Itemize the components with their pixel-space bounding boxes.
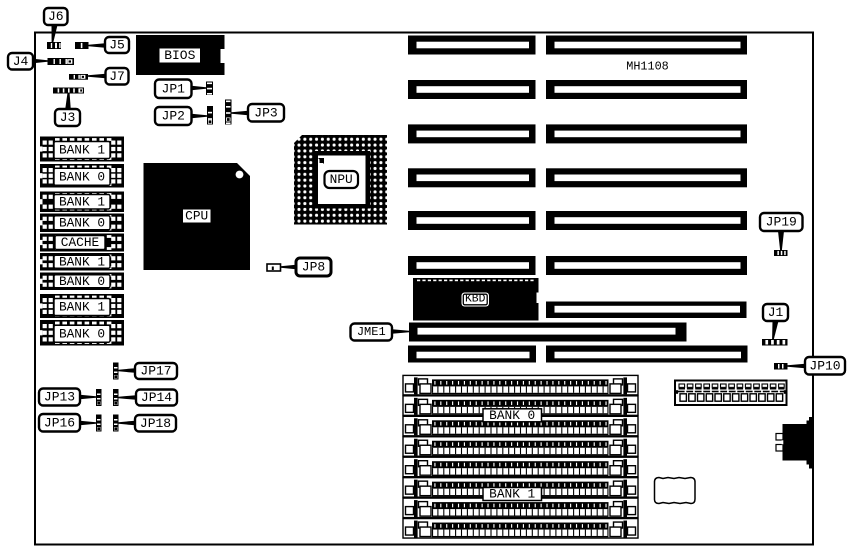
svg-text:JP3: JP3 [254,105,277,120]
svg-text:BANK 1: BANK 1 [59,194,105,209]
svg-text:JP17: JP17 [140,364,171,379]
svg-text:J4: J4 [13,54,29,69]
svg-text:KBD: KBD [465,294,486,306]
svg-text:BANK 0: BANK 0 [489,408,535,423]
svg-text:J6: J6 [48,9,64,24]
svg-text:JP16: JP16 [44,415,75,430]
svg-text:BANK 0: BANK 0 [59,326,105,341]
svg-text:JP13: JP13 [44,390,75,405]
svg-text:CPU: CPU [185,209,208,224]
svg-text:J5: J5 [109,38,125,53]
svg-text:BANK 1: BANK 1 [59,254,105,269]
svg-text:JP10: JP10 [809,358,840,373]
svg-text:JME1: JME1 [357,325,386,339]
svg-text:BIOS: BIOS [164,48,195,63]
svg-text:BANK 1: BANK 1 [59,300,105,315]
svg-text:MH1108: MH1108 [626,60,668,74]
svg-text:JP2: JP2 [162,109,185,124]
svg-text:BANK 1: BANK 1 [59,143,105,158]
svg-text:JP14: JP14 [141,390,172,405]
svg-text:BANK 0: BANK 0 [59,274,105,289]
svg-text:BANK 0: BANK 0 [59,215,105,230]
svg-text:BANK 1: BANK 1 [489,487,535,502]
svg-text:JP18: JP18 [140,416,171,431]
svg-text:JP1: JP1 [162,81,186,96]
svg-text:BANK 0: BANK 0 [59,169,105,184]
svg-text:JP19: JP19 [766,215,797,230]
svg-text:CACHE: CACHE [61,235,100,250]
svg-text:NPU: NPU [330,172,353,187]
svg-text:J1: J1 [768,305,784,320]
svg-text:J3: J3 [60,110,76,125]
svg-text:J7: J7 [109,69,125,84]
svg-text:JP8: JP8 [302,260,325,275]
